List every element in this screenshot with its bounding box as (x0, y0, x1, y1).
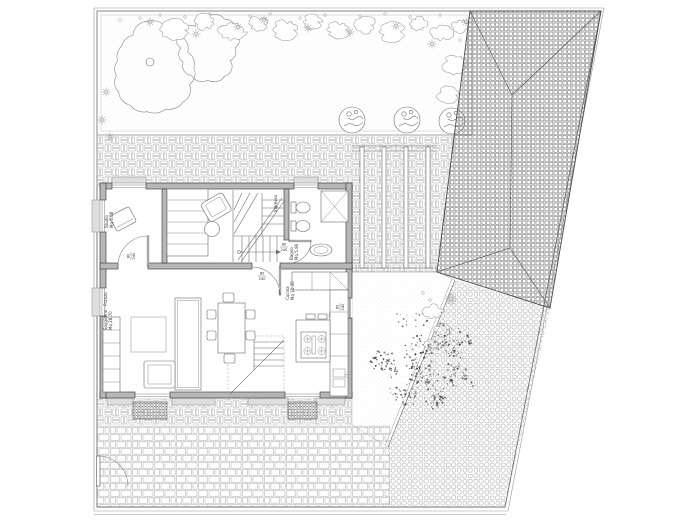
svg-text:240: 240 (281, 248, 289, 252)
dining-table (218, 303, 245, 353)
planters (339, 107, 465, 134)
floor-plan-page: StudioMq 5.08IngressoBagnoMq 5.96CucinaM… (0, 0, 700, 525)
flagstone-paving (97, 425, 390, 507)
shower (321, 191, 348, 222)
house-floor (100, 183, 352, 398)
wardrobe (167, 189, 208, 256)
side-table (205, 222, 220, 237)
sofa (144, 361, 175, 388)
svg-text:80: 80 (282, 243, 287, 247)
room-label-ingresso: Ingresso (273, 195, 278, 212)
svg-text:240: 240 (341, 303, 345, 311)
cooktop (301, 332, 326, 358)
washbasin (310, 244, 332, 256)
toilet (291, 202, 310, 213)
svg-text:240: 240 (259, 277, 267, 281)
svg-text:80: 80 (336, 304, 340, 309)
svg-text:80: 80 (127, 253, 131, 258)
house (92, 177, 352, 419)
svg-text:240: 240 (132, 252, 136, 260)
tv-unit (175, 298, 201, 390)
site-plan-drawing: StudioMq 5.08IngressoBagnoMq 5.96CucinaM… (0, 0, 700, 525)
svg-text:80: 80 (260, 272, 265, 276)
bidet (291, 221, 310, 232)
